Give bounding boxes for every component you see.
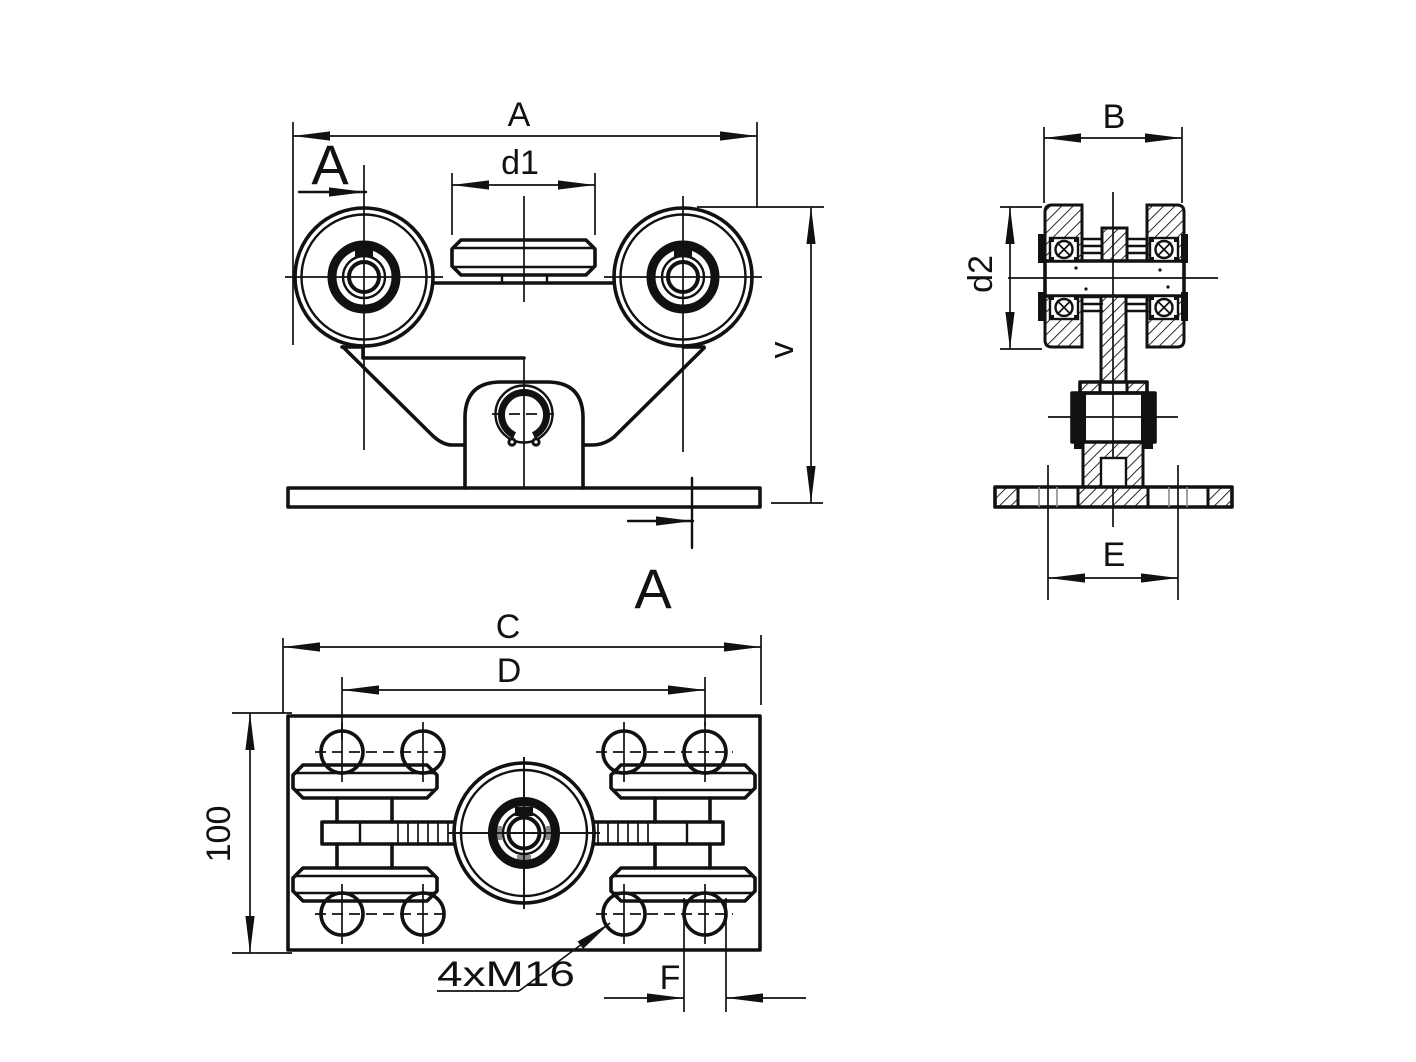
dim-B-label: B — [1103, 98, 1126, 136]
seal-tab — [1181, 234, 1188, 263]
spacer — [1102, 228, 1127, 261]
dim-v-label: v — [763, 342, 801, 359]
shaft — [1101, 296, 1126, 382]
dim-C-label: C — [496, 608, 521, 646]
dim-100-label: 100 — [200, 806, 238, 863]
dim-A-label: A — [508, 96, 531, 134]
bearing-symbol — [1150, 296, 1178, 319]
keyway-mark — [355, 249, 373, 257]
dim-F-label: F — [660, 959, 681, 997]
keyway-mark — [674, 249, 692, 257]
bearing-symbol — [1150, 238, 1178, 261]
bearing-symbol — [1050, 238, 1078, 261]
seal-tab — [1038, 234, 1045, 263]
seal-tab — [1038, 292, 1045, 321]
drawing-sheet: A d1 v A A — [0, 0, 1416, 1062]
dim-d1-label: d1 — [501, 144, 539, 182]
dim-D-label: D — [497, 652, 522, 690]
trolley-drawing: A d1 v A A — [0, 0, 1416, 1062]
dim-d2-label: d2 — [962, 255, 1000, 293]
bearing-symbol — [1050, 296, 1078, 319]
bolt-note-label: 4xM16 — [437, 955, 575, 994]
section-label-bottom: A — [634, 557, 672, 620]
boss — [1083, 442, 1143, 487]
seal-tab — [1181, 292, 1188, 321]
dim-E-label: E — [1103, 536, 1126, 574]
section-label-top: A — [311, 133, 349, 196]
